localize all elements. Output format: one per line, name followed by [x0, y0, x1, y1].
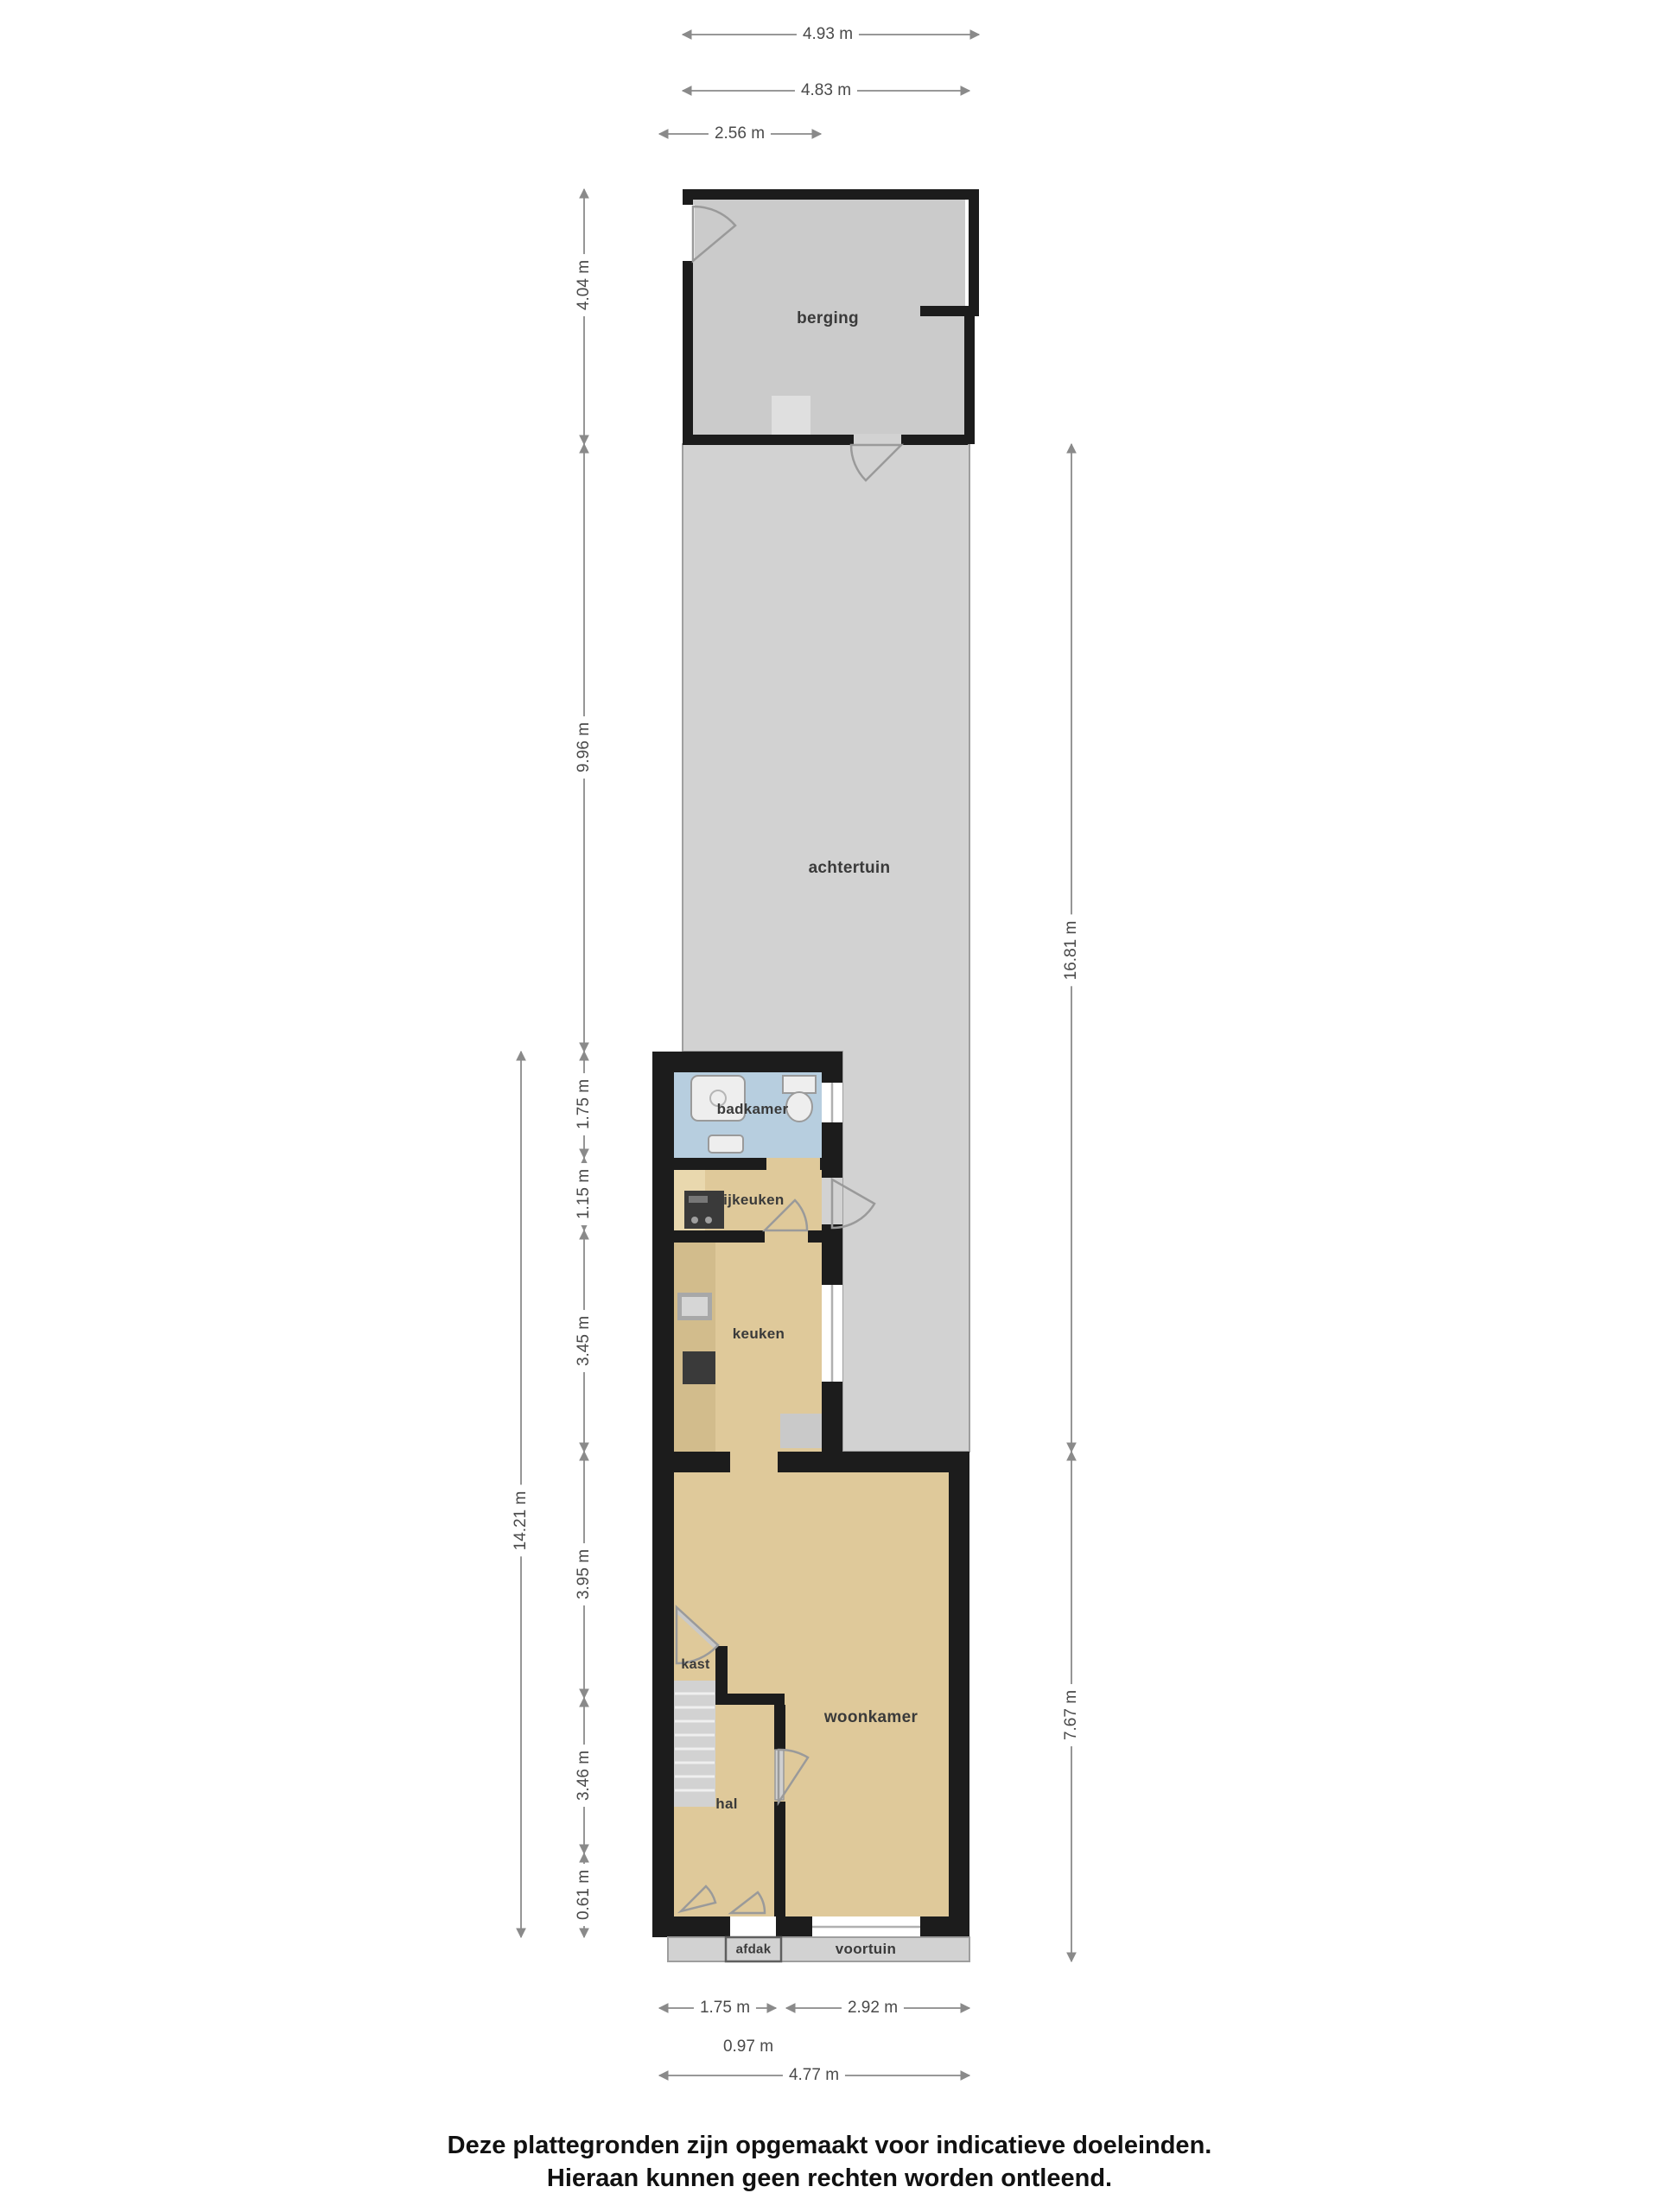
- disclaimer: Deze plattegronden zijn opgemaakt voor i…: [448, 2129, 1212, 2195]
- room-label-bijkeuken: bijkeuken: [714, 1192, 784, 1209]
- bijkeuken-keuken-opening: [765, 1230, 808, 1243]
- dim-label-woonkamer-depth: 3.95 m: [574, 1543, 594, 1605]
- floorplan-canvas: [0, 0, 1659, 2212]
- badkamer-bijkeuken-opening: [766, 1158, 820, 1170]
- house-lower-structure: [652, 1452, 969, 1937]
- sink-bathroom-icon: [709, 1135, 743, 1153]
- front-yard-strip: [668, 1937, 969, 1961]
- staircase: [674, 1681, 715, 1807]
- room-label-keuken: keuken: [733, 1325, 785, 1343]
- dim-label-berging-depth: 4.04 m: [574, 254, 594, 316]
- dim-label-hal-width: 1.75 m: [694, 1998, 756, 2018]
- dim-label-huis-rechts: 7.67 m: [1061, 1684, 1082, 1746]
- keuken-mat: [780, 1414, 822, 1448]
- front-door-opening: [730, 1916, 776, 1937]
- dim-label-afdak-width: 0.97 m: [717, 2037, 779, 2057]
- room-label-voortuin: voortuin: [836, 1941, 896, 1958]
- room-label-afdak: afdak: [736, 1942, 772, 1957]
- room-label-achtertuin: achtertuin: [809, 859, 891, 878]
- berging-structure: [681, 189, 979, 480]
- keuken-woonkamer-opening: [730, 1452, 778, 1472]
- dim-label-keuken-depth: 3.45 m: [574, 1310, 594, 1372]
- dim-label-top-width: 4.93 m: [797, 24, 859, 45]
- berging-floor-mat: [772, 396, 810, 435]
- dim-label-achtertuin-depth: 16.81 m: [1061, 915, 1082, 987]
- room-label-hal: hal: [715, 1796, 737, 1813]
- dim-label-woonkamer-width: 2.92 m: [842, 1998, 904, 2018]
- dim-label-keuken-width: 2.56 m: [709, 124, 771, 144]
- room-label-badkamer: badkamer: [717, 1101, 789, 1118]
- room-label-woonkamer: woonkamer: [824, 1708, 918, 1727]
- toilet-bowl-icon: [786, 1092, 812, 1122]
- dim-label-bijkeuken-depth: 1.15 m: [574, 1163, 594, 1225]
- stove-icon: [683, 1351, 715, 1384]
- dim-label-afdak-depth: 0.61 m: [574, 1864, 594, 1926]
- floorplan-page: berging achtertuin badkamer bijkeuken ke…: [0, 0, 1659, 2212]
- dim-label-hal-depth: 3.46 m: [574, 1745, 594, 1807]
- dim-label-house-width: 4.77 m: [783, 2065, 845, 2086]
- keuken-counter: [674, 1243, 715, 1452]
- dim-label-badkamer-depth: 1.75 m: [574, 1073, 594, 1135]
- room-label-kast: kast: [681, 1657, 709, 1673]
- dim-label-house-depth: 14.21 m: [511, 1485, 531, 1557]
- room-label-berging: berging: [797, 309, 859, 328]
- dim-label-berging-width: 4.83 m: [795, 80, 857, 101]
- toilet-tank-icon: [783, 1076, 816, 1093]
- dim-label-tuin-depth: 9.96 m: [574, 716, 594, 779]
- disclaimer-line-2: Hieraan kunnen geen rechten worden ontle…: [448, 2162, 1212, 2195]
- disclaimer-line-1: Deze plattegronden zijn opgemaakt voor i…: [448, 2129, 1212, 2162]
